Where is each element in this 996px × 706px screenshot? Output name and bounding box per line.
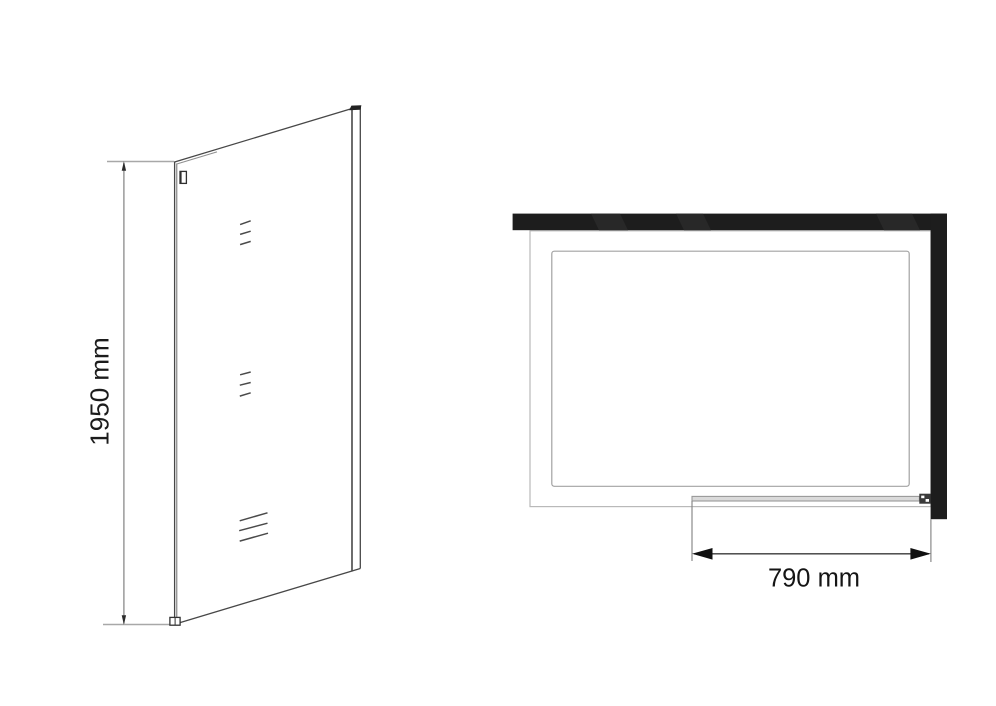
svg-text:790 mm: 790 mm — [768, 565, 860, 593]
svg-text:1950 mm: 1950 mm — [85, 337, 115, 445]
